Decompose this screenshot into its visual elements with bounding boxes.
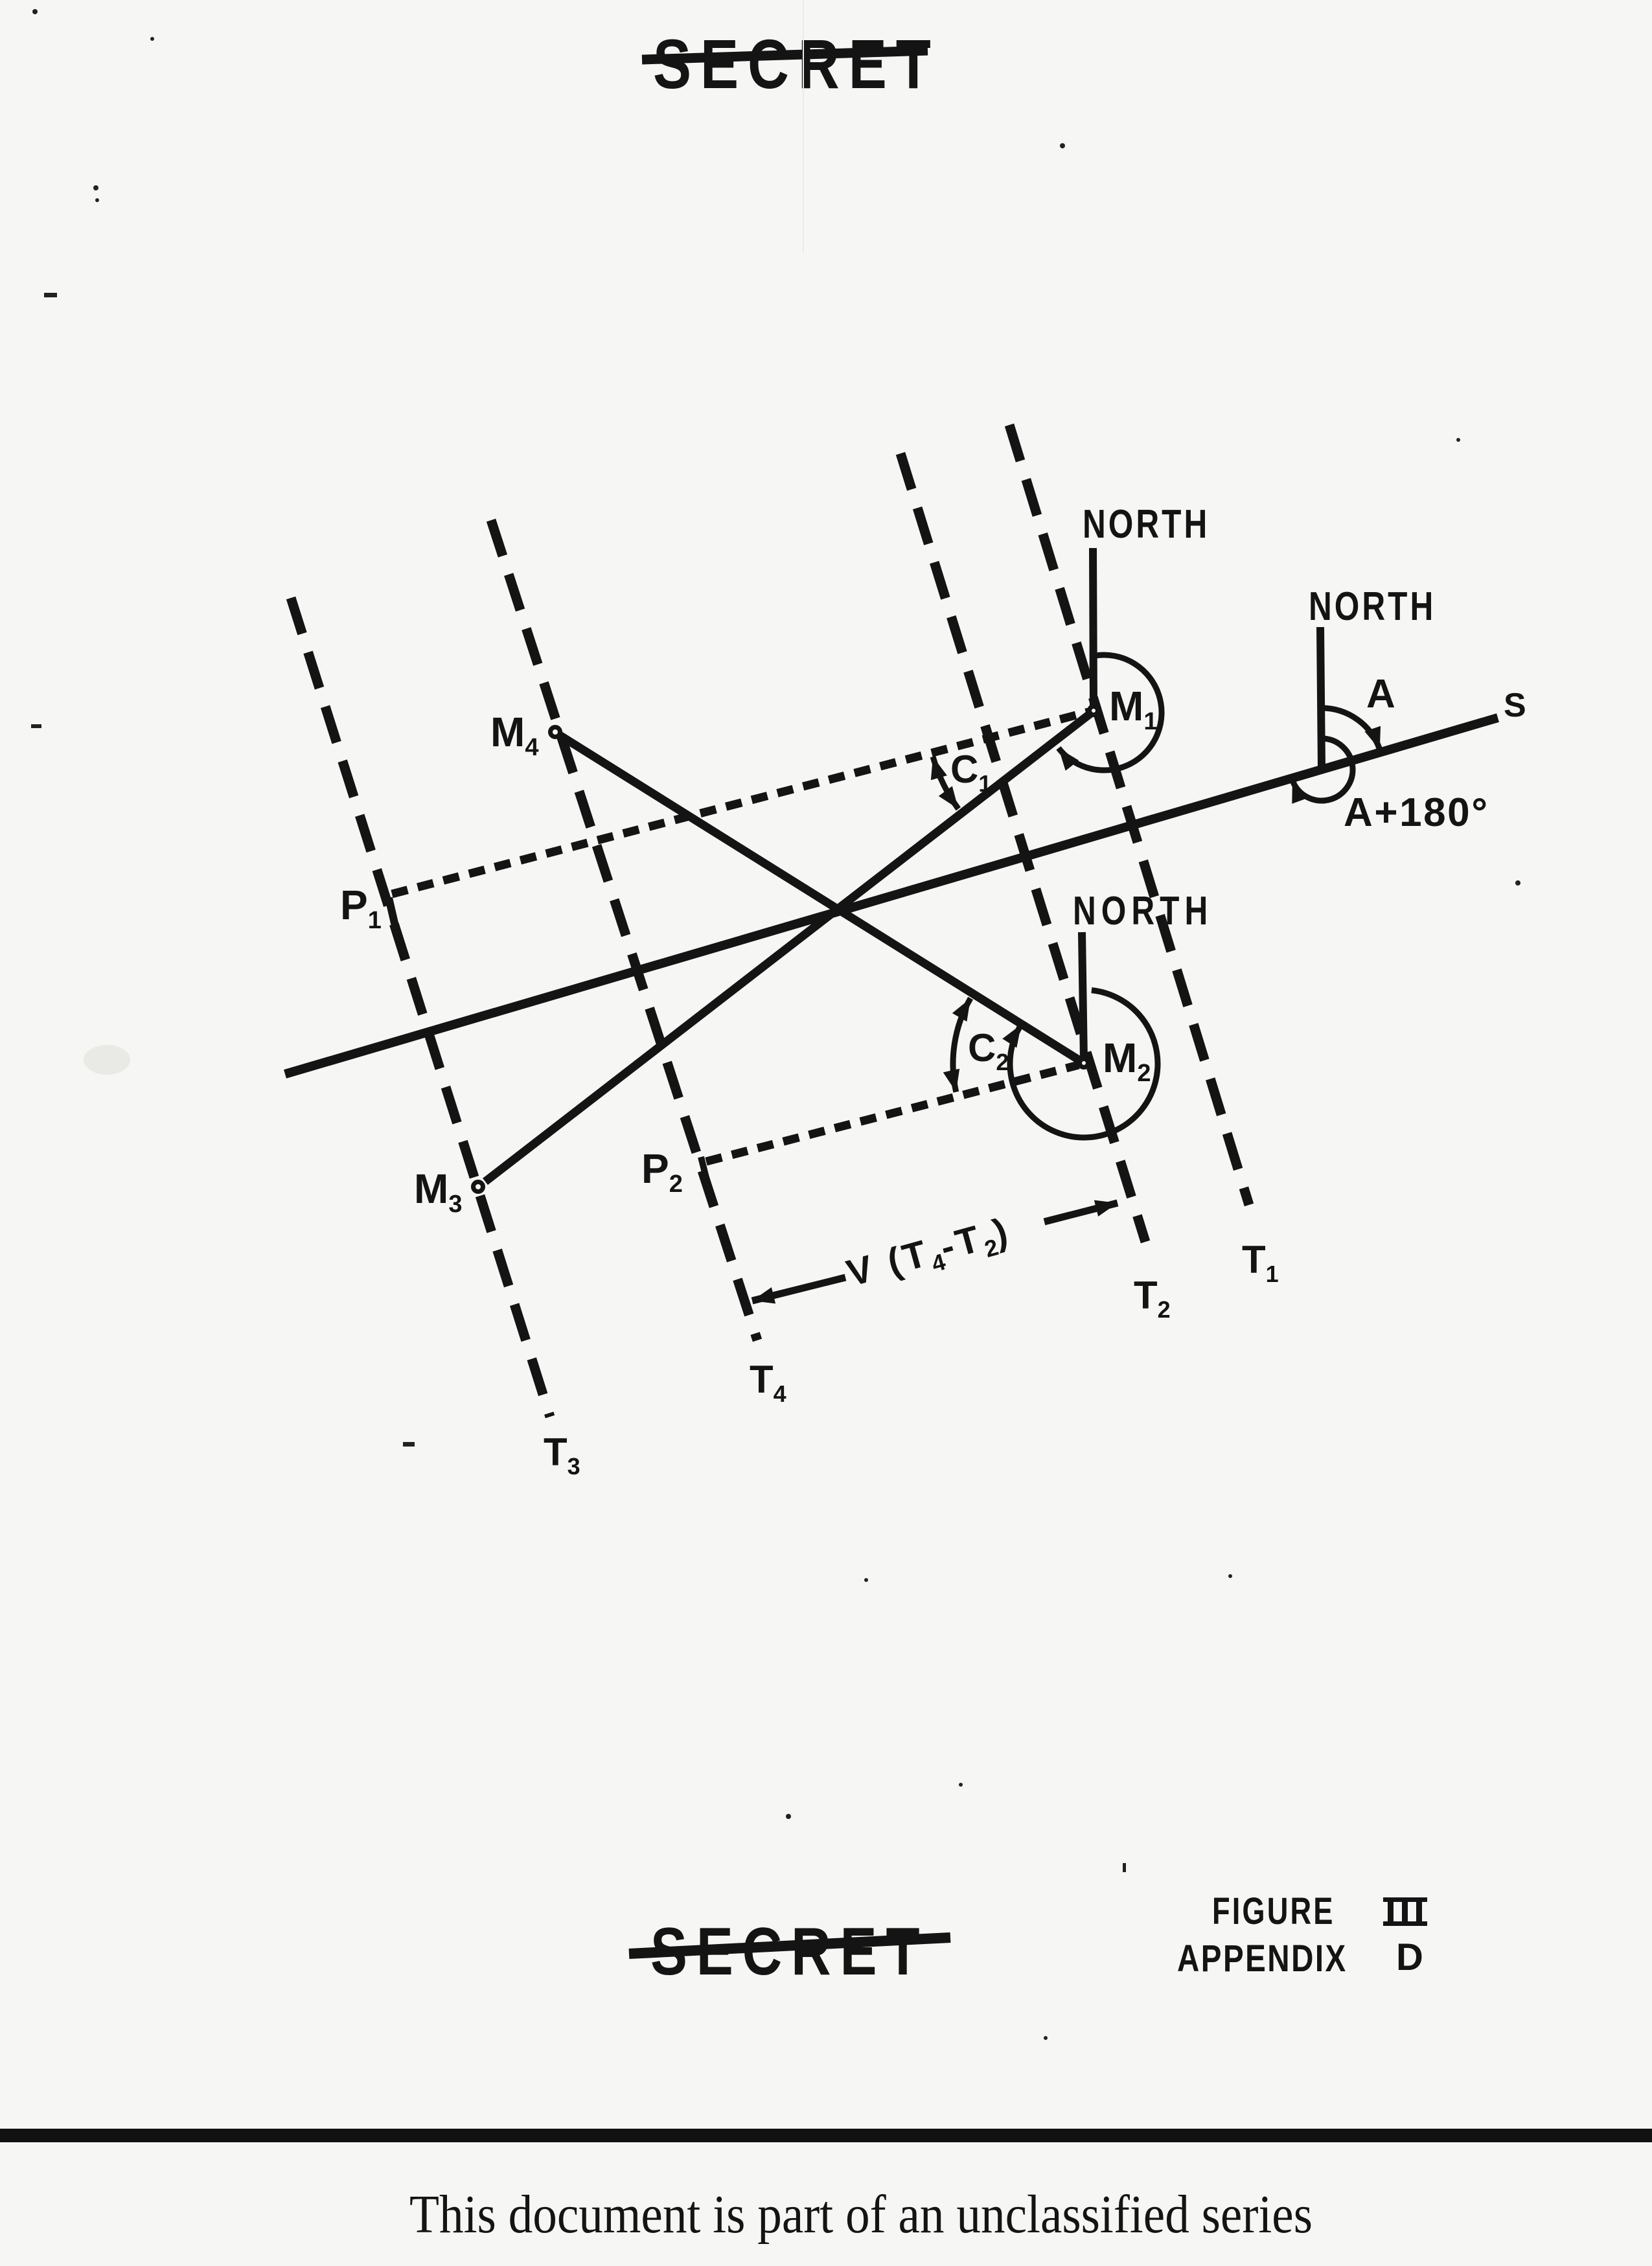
svg-text:S: S: [1504, 687, 1526, 724]
svg-text:A+180°: A+180°: [1344, 790, 1487, 835]
svg-text:D: D: [1396, 1936, 1423, 1978]
svg-text:SECRET: SECRET: [653, 25, 940, 103]
svg-text:APPENDIX: APPENDIX: [1177, 1938, 1348, 1980]
svg-text:NORTH: NORTH: [1083, 501, 1210, 547]
svg-text:NORTH: NORTH: [1309, 584, 1436, 629]
svg-text:NORTH: NORTH: [1073, 888, 1213, 933]
svg-text:A: A: [1366, 672, 1395, 716]
svg-text:FIGURE: FIGURE: [1212, 1891, 1335, 1933]
svg-text:This document is part of an un: This document is part of an unclassified…: [409, 2184, 1313, 2245]
